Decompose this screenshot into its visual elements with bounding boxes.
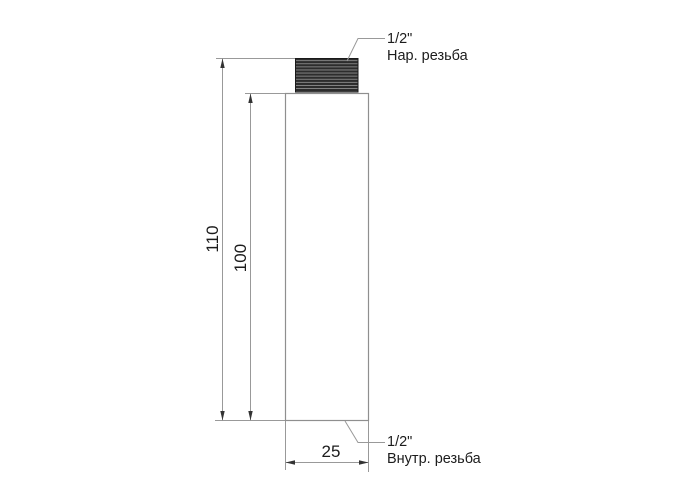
- dimension-width-label: 25: [322, 442, 341, 461]
- dimension-body-height: 100: [231, 94, 253, 421]
- callout-top-size-label: 1/2": [387, 31, 412, 47]
- leader-line-bottom: [345, 421, 385, 443]
- dimension-body-height-label: 100: [231, 244, 250, 272]
- arrowhead-down-icon: [220, 411, 224, 421]
- callout-bottom-type-label: Внутр. резьба: [387, 451, 482, 467]
- callout-internal-thread: 1/2" Внутр. резьба: [345, 421, 482, 467]
- fitting-drawing-svg: 110 100 25 1/2" Нар. резьба 1/2" Внутр. …: [0, 0, 700, 500]
- callout-bottom-size-label: 1/2": [387, 434, 412, 450]
- dimension-width: 25: [286, 442, 369, 465]
- arrowhead-right-icon: [359, 460, 369, 464]
- arrowhead-left-icon: [286, 460, 296, 464]
- leader-line-top: [347, 39, 385, 62]
- arrowhead-down-icon: [248, 411, 252, 421]
- arrowhead-up-icon: [248, 94, 252, 104]
- technical-drawing-page: 110 100 25 1/2" Нар. резьба 1/2" Внутр. …: [0, 0, 700, 500]
- dimension-total-height: 110: [203, 59, 225, 421]
- callout-external-thread: 1/2" Нар. резьба: [347, 31, 469, 64]
- external-thread: [296, 59, 359, 93]
- arrowhead-up-icon: [220, 59, 224, 69]
- dimension-total-height-label: 110: [203, 225, 222, 252]
- callout-top-type-label: Нар. резьба: [387, 48, 469, 64]
- fitting-body: [286, 94, 369, 421]
